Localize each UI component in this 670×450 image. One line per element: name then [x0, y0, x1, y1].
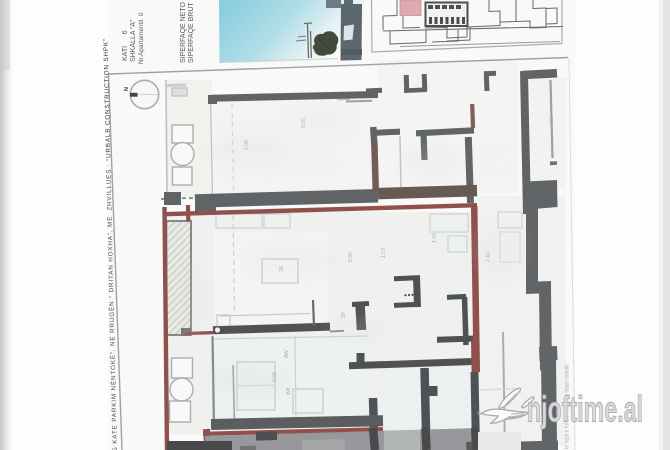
svg-text:njoftime.al: njoftime.al — [527, 389, 643, 430]
